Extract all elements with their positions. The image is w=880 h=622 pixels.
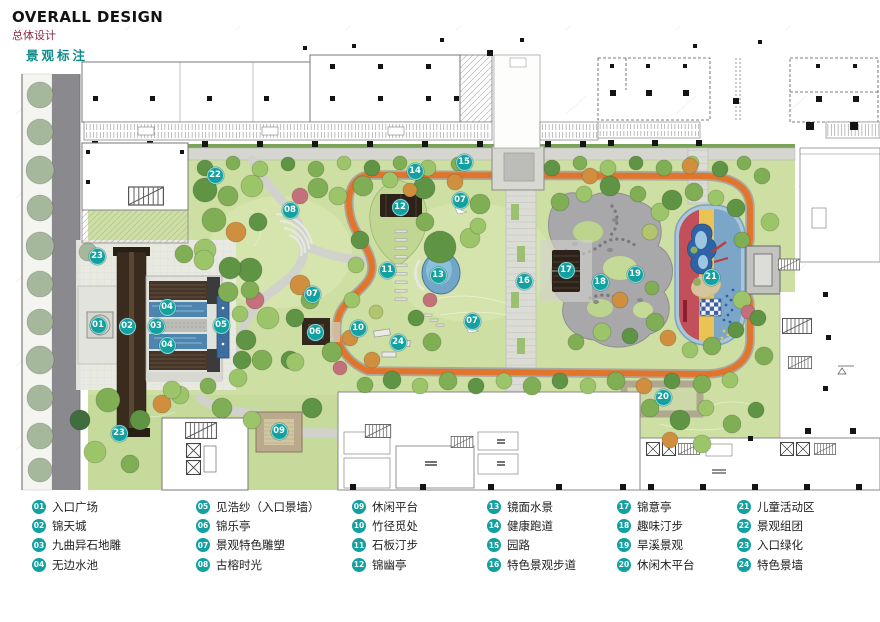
legend-label: 趣味汀步 <box>637 518 683 534</box>
legend-item-07: 07景观特色雕塑 <box>196 536 320 555</box>
legend-label: 锦天城 <box>52 518 87 534</box>
legend-item-01: 01入口广场 <box>32 497 121 516</box>
legend-label: 入口广场 <box>52 499 98 515</box>
legend-label: 见浩纱（入口景墙） <box>216 499 320 515</box>
plaza-square <box>492 146 544 190</box>
legend-item-18: 18趣味汀步 <box>617 516 695 535</box>
leisure-platform-09 <box>256 412 302 452</box>
pavilion-06 <box>302 318 340 345</box>
legend-item-17: 17锦意亭 <box>617 497 695 516</box>
legend-item-13: 13镜面水景 <box>487 497 576 516</box>
legend-column-2: 05见浩纱（入口景墙）06锦乐亭07景观特色雕塑08古榕时光 <box>196 497 320 574</box>
legend-column-5: 17锦意亭18趣味汀步19旱溪景观20休闲木平台 <box>617 497 695 574</box>
legend-item-08: 08古榕时光 <box>196 555 320 574</box>
legend-column-1: 01入口广场02锦天城03九曲异石地雕04无边水池 <box>32 497 121 574</box>
legend-item-14: 14健康跑道 <box>487 516 576 535</box>
legend-label: 锦意亭 <box>637 499 672 515</box>
legend-badge: 06 <box>196 519 210 533</box>
legend-label: 特色景墙 <box>757 557 803 573</box>
legend-badge: 22 <box>737 519 751 533</box>
legend-label: 锦乐亭 <box>216 518 251 534</box>
legend-label: 入口绿化 <box>757 537 803 553</box>
legend-badge: 08 <box>196 558 210 572</box>
legend-badge: 16 <box>487 558 501 572</box>
legend-label: 休闲平台 <box>372 499 418 515</box>
legend-item-02: 02锦天城 <box>32 516 121 535</box>
legend-item-20: 20休闲木平台 <box>617 555 695 574</box>
legend: 01入口广场02锦天城03九曲异石地雕04无边水池05见浩纱（入口景墙）06锦乐… <box>0 497 880 579</box>
legend-label: 园路 <box>507 537 530 553</box>
legend-item-11: 11石板汀步 <box>352 536 418 555</box>
legend-badge: 14 <box>487 519 501 533</box>
legend-item-03: 03九曲异石地雕 <box>32 536 121 555</box>
legend-badge: 23 <box>737 538 751 552</box>
legend-item-15: 15园路 <box>487 536 576 555</box>
legend-badge: 13 <box>487 500 501 514</box>
building-left-lower <box>82 143 188 243</box>
legend-badge: 11 <box>352 538 366 552</box>
legend-badge: 10 <box>352 519 366 533</box>
legend-label: 休闲木平台 <box>637 557 695 573</box>
legend-badge: 02 <box>32 519 46 533</box>
legend-label: 镜面水景 <box>507 499 553 515</box>
legend-item-04: 04无边水池 <box>32 555 121 574</box>
legend-label: 旱溪景观 <box>637 537 683 553</box>
legend-item-12: 12锦幽亭 <box>352 555 418 574</box>
legend-item-06: 06锦乐亭 <box>196 516 320 535</box>
legend-badge: 04 <box>32 558 46 572</box>
legend-badge: 05 <box>196 500 210 514</box>
legend-label: 竹径觅处 <box>372 518 418 534</box>
legend-item-23: 23入口绿化 <box>737 536 815 555</box>
legend-item-21: 21儿童活动区 <box>737 497 815 516</box>
legend-column-6: 21儿童活动区22景观组团23入口绿化24特色景墙 <box>737 497 815 574</box>
legend-badge: 19 <box>617 538 631 552</box>
legend-badge: 12 <box>352 558 366 572</box>
legend-badge: 03 <box>32 538 46 552</box>
legend-column-4: 13镜面水景14健康跑道15园路16特色景观步道 <box>487 497 576 574</box>
legend-badge: 07 <box>196 538 210 552</box>
pavilion-17 <box>540 240 592 302</box>
legend-label: 石板汀步 <box>372 537 418 553</box>
legend-label: 景观特色雕塑 <box>216 537 285 553</box>
legend-label: 锦幽亭 <box>372 557 407 573</box>
legend-item-10: 10竹径觅处 <box>352 516 418 535</box>
legend-label: 九曲异石地雕 <box>52 537 121 553</box>
legend-badge: 09 <box>352 500 366 514</box>
legend-badge: 18 <box>617 519 631 533</box>
legend-item-16: 16特色景观步道 <box>487 555 576 574</box>
legend-label: 健康跑道 <box>507 518 553 534</box>
legend-item-05: 05见浩纱（入口景墙） <box>196 497 320 516</box>
legend-badge: 17 <box>617 500 631 514</box>
legend-column-3: 09休闲平台10竹径觅处11石板汀步12锦幽亭 <box>352 497 418 574</box>
legend-item-09: 09休闲平台 <box>352 497 418 516</box>
legend-label: 景观组团 <box>757 518 803 534</box>
legend-badge: 21 <box>737 500 751 514</box>
legend-label: 无边水池 <box>52 557 98 573</box>
legend-badge: 24 <box>737 558 751 572</box>
page: OVERALL DESIGN 总体设计 景观标注 <box>0 0 880 622</box>
legend-badge: 15 <box>487 538 501 552</box>
legend-badge: 01 <box>32 500 46 514</box>
legend-label: 古榕时光 <box>216 557 262 573</box>
legend-item-24: 24特色景墙 <box>737 555 815 574</box>
legend-label: 儿童活动区 <box>757 499 815 515</box>
legend-item-22: 22景观组团 <box>737 516 815 535</box>
legend-label: 特色景观步道 <box>507 557 576 573</box>
legend-badge: 20 <box>617 558 631 572</box>
legend-item-19: 19旱溪景观 <box>617 536 695 555</box>
